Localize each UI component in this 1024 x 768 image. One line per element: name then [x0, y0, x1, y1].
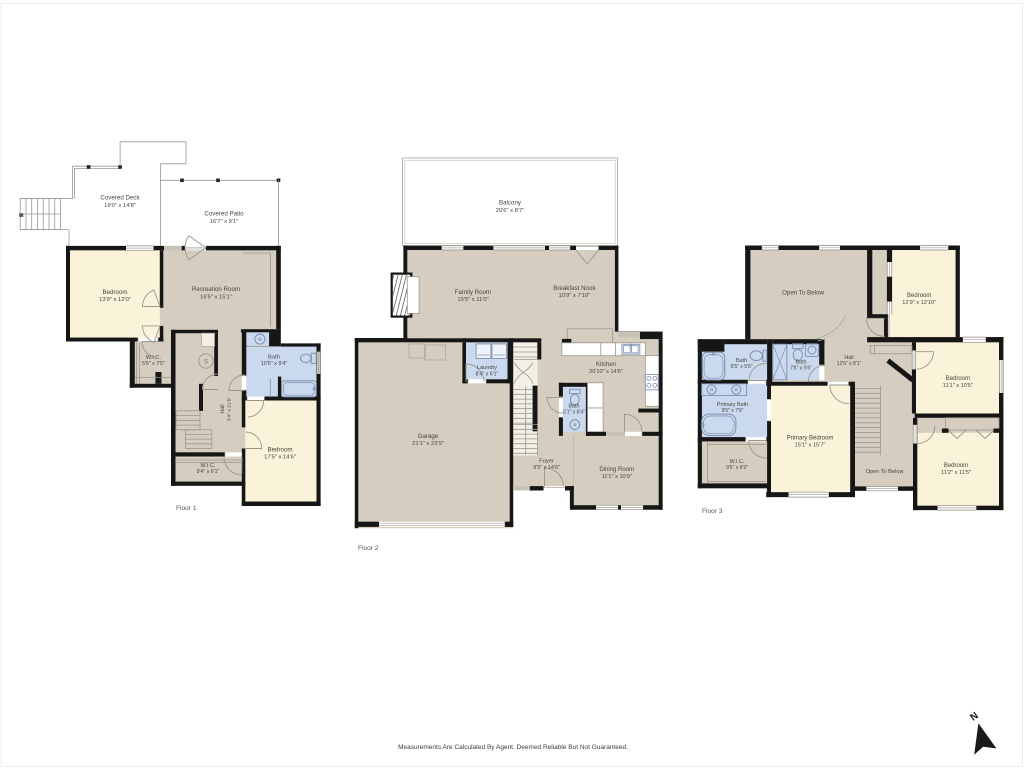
svg-text:Floor 1: Floor 1: [176, 505, 197, 512]
svg-text:17'5" x 14'6": 17'5" x 14'6": [264, 455, 296, 461]
svg-text:10'9" x 7'10": 10'9" x 7'10": [559, 293, 591, 299]
svg-text:9'5" x 7'9": 9'5" x 7'9": [722, 408, 744, 414]
svg-text:Bath: Bath: [568, 404, 579, 410]
svg-text:Primary Bedroom: Primary Bedroom: [787, 436, 834, 442]
svg-text:Bedroom: Bedroom: [946, 376, 970, 382]
svg-text:Hall: Hall: [220, 405, 226, 414]
svg-text:Foyer: Foyer: [539, 459, 554, 465]
svg-text:Recreation Room: Recreation Room: [192, 286, 240, 293]
svg-text:Bath: Bath: [736, 358, 747, 364]
svg-text:9'4" x 6'1": 9'4" x 6'1": [197, 469, 220, 475]
svg-text:13'9" x 12'0": 13'9" x 12'0": [99, 297, 131, 303]
svg-text:W.I.C.: W.I.C.: [146, 355, 162, 361]
svg-text:9'5" x 14'6": 9'5" x 14'6": [533, 465, 560, 471]
svg-text:Laundry: Laundry: [477, 365, 497, 371]
svg-text:5'1" x 6'4": 5'1" x 6'4": [563, 410, 585, 416]
svg-text:Primary Bath: Primary Bath: [717, 402, 748, 408]
svg-text:11'2" x 11'5": 11'2" x 11'5": [941, 470, 971, 476]
svg-text:Bedroom: Bedroom: [907, 293, 931, 299]
svg-text:12'9" x 12'10": 12'9" x 12'10": [902, 300, 936, 306]
svg-text:8'4" x 6'1": 8'4" x 6'1": [476, 371, 499, 377]
svg-text:19'5" x 11'0": 19'5" x 11'0": [457, 297, 488, 303]
svg-text:Garage: Garage: [418, 433, 439, 440]
svg-text:Hall: Hall: [844, 355, 853, 361]
svg-text:Floor 2: Floor 2: [358, 545, 379, 552]
svg-text:3'4" x 21'6": 3'4" x 21'6": [227, 397, 233, 421]
svg-text:S: S: [204, 360, 208, 366]
svg-text:10'5" x 9'4": 10'5" x 9'4": [261, 361, 288, 367]
svg-text:Bedroom: Bedroom: [944, 463, 968, 469]
svg-text:Dining Room: Dining Room: [599, 467, 634, 473]
svg-text:Open To Below: Open To Below: [782, 290, 824, 297]
svg-text:Family Room: Family Room: [455, 289, 491, 296]
svg-text:29'6" x 8'7": 29'6" x 8'7": [496, 208, 525, 214]
svg-text:Covered Deck: Covered Deck: [100, 195, 140, 202]
svg-text:9'5" x 5'6": 9'5" x 5'6": [731, 364, 753, 370]
svg-text:16'5" x 15'1": 16'5" x 15'1": [200, 294, 232, 300]
svg-text:Covered Patio: Covered Patio: [204, 211, 244, 218]
svg-text:Open To Below: Open To Below: [866, 469, 905, 475]
svg-text:15'1" x 15'7": 15'1" x 15'7": [795, 443, 826, 449]
svg-text:5'6" x 7'5": 5'6" x 7'5": [142, 361, 165, 367]
svg-text:Bath: Bath: [795, 360, 806, 366]
svg-text:19'0" x 14'8": 19'0" x 14'8": [104, 203, 136, 209]
svg-text:Bath: Bath: [268, 355, 280, 361]
svg-text:16'7" x 9'1": 16'7" x 9'1": [210, 219, 239, 225]
svg-text:11'1" x 10'9": 11'1" x 10'9": [602, 474, 632, 480]
svg-text:21'1" x 23'9": 21'1" x 23'9": [412, 441, 444, 447]
svg-text:W.I.C.: W.I.C.: [200, 463, 216, 469]
svg-text:Measurements Are Calculated By: Measurements Are Calculated By Agent. De…: [398, 744, 628, 751]
svg-text:7'6" x 5'6": 7'6" x 5'6": [790, 366, 812, 372]
svg-text:W.I.C.: W.I.C.: [730, 459, 745, 465]
svg-text:20'10" x 14'6": 20'10" x 14'6": [589, 369, 623, 375]
svg-text:11'1" x 10'5": 11'1" x 10'5": [943, 383, 973, 389]
svg-text:9'5" x 6'9": 9'5" x 6'9": [726, 465, 748, 471]
svg-text:Bedroom: Bedroom: [102, 289, 127, 296]
svg-text:Breakfast Nook: Breakfast Nook: [553, 285, 596, 292]
svg-text:12'6" x 8'1": 12'6" x 8'1": [837, 361, 862, 367]
svg-text:Floor 3: Floor 3: [702, 508, 723, 515]
svg-text:Balcony: Balcony: [499, 200, 522, 207]
svg-text:Kitchen: Kitchen: [596, 362, 616, 368]
svg-text:Bedroom: Bedroom: [267, 447, 292, 454]
